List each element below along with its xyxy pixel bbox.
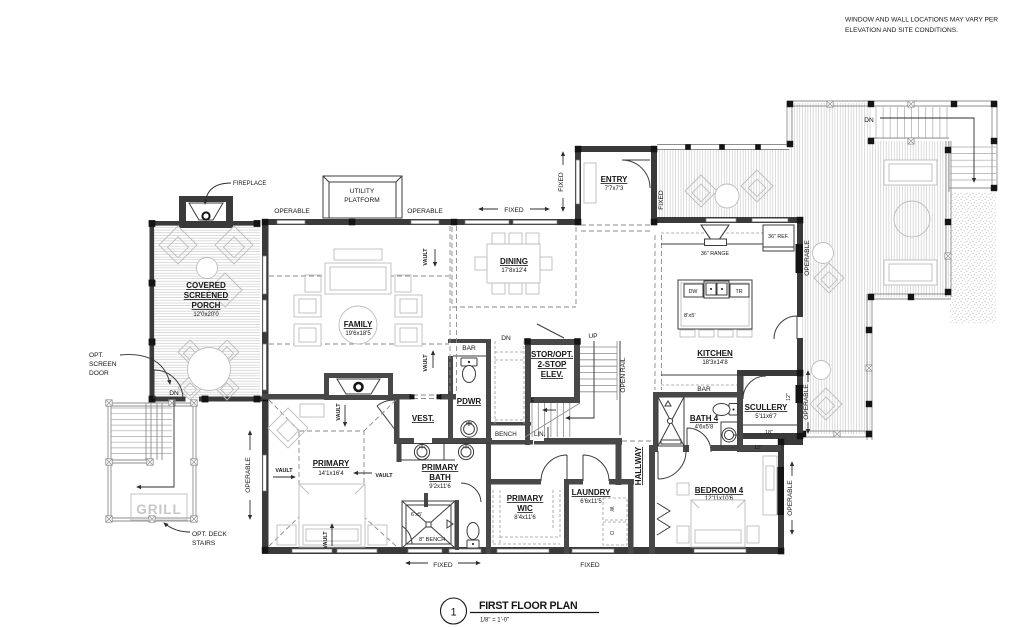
svg-text:8" BENCH: 8" BENCH	[419, 537, 445, 543]
svg-text:BAR: BAR	[462, 345, 476, 352]
svg-text:SCULLERY: SCULLERY	[745, 403, 788, 412]
svg-text:19'6x18'5: 19'6x18'5	[345, 331, 371, 337]
svg-text:17'8x12'4: 17'8x12'4	[501, 268, 527, 274]
svg-text:DINING: DINING	[500, 257, 528, 266]
svg-text:OPT.: OPT.	[89, 352, 104, 359]
svg-text:7'7x7'3: 7'7x7'3	[605, 186, 624, 192]
svg-text:BEDROOM 4: BEDROOM 4	[695, 486, 744, 495]
svg-text:LAUNDRY: LAUNDRY	[572, 488, 611, 497]
svg-text:WINDOW AND WALL LOCATIONS MAY: WINDOW AND WALL LOCATIONS MAY VARY PER	[845, 16, 998, 23]
svg-text:HALLWAY: HALLWAY	[634, 446, 643, 485]
svg-text:FIXED: FIXED	[433, 562, 453, 569]
svg-text:SCREEN: SCREEN	[89, 361, 117, 368]
svg-text:8'4x11'6: 8'4x11'6	[514, 515, 536, 521]
svg-text:WIC: WIC	[517, 504, 533, 513]
svg-text:4'6x5'8: 4'6x5'8	[695, 425, 714, 431]
svg-text:DN: DN	[501, 335, 511, 342]
svg-text:12'0x20'0: 12'0x20'0	[193, 312, 219, 318]
svg-text:OPERABLE: OPERABLE	[407, 208, 443, 215]
svg-text:DOOR: DOOR	[89, 370, 109, 377]
svg-text:18": 18"	[765, 430, 773, 436]
svg-text:PRIMARY: PRIMARY	[422, 463, 459, 472]
svg-text:DN: DN	[864, 117, 874, 124]
svg-text:8'x5': 8'x5'	[684, 313, 696, 319]
svg-text:OPERABLE: OPERABLE	[787, 480, 794, 516]
svg-text:BAR: BAR	[697, 386, 711, 393]
svg-text:D: D	[608, 531, 614, 535]
svg-text:VAULT: VAULT	[423, 248, 429, 266]
svg-text:5'11x6'7: 5'11x6'7	[755, 414, 777, 420]
svg-text:ENTRY: ENTRY	[601, 175, 628, 184]
svg-text:DW: DW	[689, 289, 698, 295]
svg-text:FIXED: FIXED	[558, 172, 565, 192]
svg-text:FIRST FLOOR PLAN: FIRST FLOOR PLAN	[479, 600, 577, 612]
svg-text:FIREPLACE: FIREPLACE	[233, 181, 266, 187]
svg-text:OPEN RAIL: OPEN RAIL	[620, 357, 627, 393]
svg-text:18'3x14'8: 18'3x14'8	[702, 360, 728, 366]
svg-text:UP: UP	[588, 333, 598, 340]
svg-text:UTILITY: UTILITY	[350, 188, 375, 195]
svg-text:FAMILY: FAMILY	[344, 320, 373, 329]
svg-text:PRIMARY: PRIMARY	[507, 494, 544, 503]
svg-text:OPERABLE: OPERABLE	[245, 457, 252, 493]
svg-text:12": 12"	[754, 445, 762, 451]
svg-text:OPERABLE: OPERABLE	[804, 240, 811, 276]
svg-text:OPERABLE: OPERABLE	[274, 208, 310, 215]
svg-text:COVERED: COVERED	[186, 281, 226, 290]
svg-text:PLATFORM: PLATFORM	[344, 197, 379, 204]
svg-text:ELEVATION AND SITE CONDITIONS.: ELEVATION AND SITE CONDITIONS.	[845, 27, 958, 34]
svg-text:VEST.: VEST.	[412, 414, 434, 423]
svg-text:KITCHEN: KITCHEN	[697, 349, 733, 358]
svg-text:12": 12"	[786, 393, 792, 401]
svg-text:1/8" = 1'-0": 1/8" = 1'-0"	[480, 618, 509, 624]
svg-text:W: W	[608, 507, 614, 512]
svg-text:FIXED: FIXED	[580, 562, 600, 569]
svg-text:1: 1	[450, 607, 456, 619]
svg-text:ELEV.: ELEV.	[541, 370, 563, 379]
svg-text:VAULT: VAULT	[336, 403, 342, 421]
svg-text:VAULT: VAULT	[375, 473, 393, 479]
svg-text:DN: DN	[169, 390, 179, 397]
svg-text:OPT. DECK: OPT. DECK	[192, 531, 227, 538]
svg-text:VAULT: VAULT	[323, 531, 329, 549]
svg-text:LIN.: LIN.	[534, 431, 546, 438]
svg-text:FIXED: FIXED	[658, 190, 665, 210]
svg-text:PRIMARY: PRIMARY	[313, 459, 350, 468]
svg-text:9'2x11'6: 9'2x11'6	[429, 484, 451, 490]
svg-text:36" REF.: 36" REF.	[768, 234, 789, 240]
svg-text:TR: TR	[735, 289, 742, 295]
svg-text:SCREENED: SCREENED	[184, 291, 229, 300]
svg-text:STOR/OPT.: STOR/OPT.	[531, 350, 573, 359]
svg-text:PORCH: PORCH	[192, 301, 221, 310]
svg-text:36" RANGE: 36" RANGE	[701, 251, 730, 257]
svg-text:PDWR: PDWR	[457, 397, 482, 406]
svg-text:6'x5': 6'x5'	[411, 512, 422, 518]
svg-text:2-STOP: 2-STOP	[538, 360, 567, 369]
svg-text:VAULT: VAULT	[275, 468, 293, 474]
svg-text:OPERABLE: OPERABLE	[803, 384, 810, 420]
svg-text:STAIRS: STAIRS	[192, 540, 216, 547]
svg-text:FIXED: FIXED	[504, 207, 524, 214]
svg-text:BATH: BATH	[429, 473, 451, 482]
svg-text:GRILL: GRILL	[136, 502, 182, 517]
svg-text:BATH 4: BATH 4	[690, 414, 719, 423]
svg-text:VAULT: VAULT	[423, 354, 429, 372]
svg-text:6'6x11'5: 6'6x11'5	[580, 499, 602, 505]
svg-text:BENCH: BENCH	[495, 431, 517, 438]
svg-text:14'1x16'4: 14'1x16'4	[318, 471, 344, 477]
